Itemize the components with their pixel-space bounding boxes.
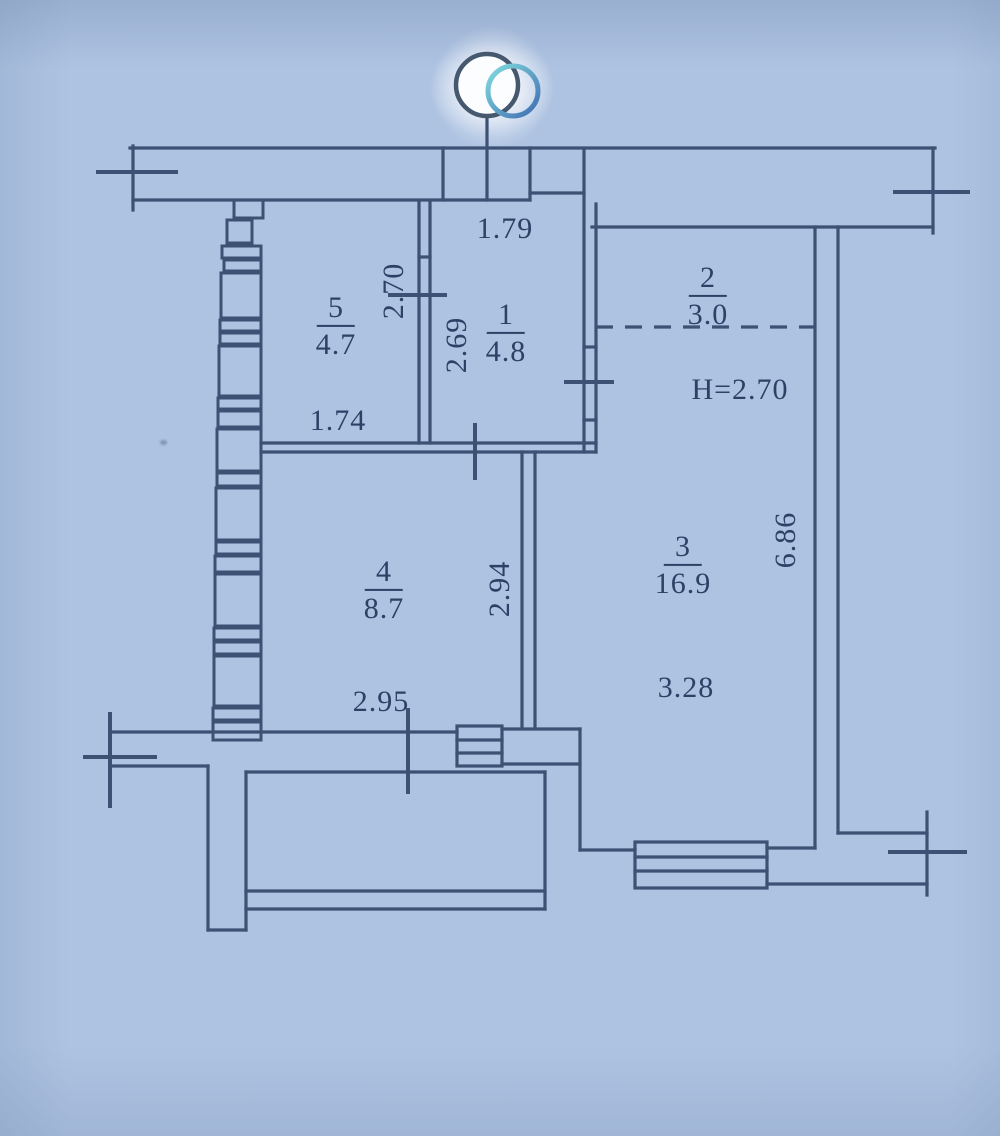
room-2-label: 2 3.0 bbox=[688, 261, 729, 331]
ceiling-height-label: H=2.70 bbox=[691, 373, 788, 407]
ink-smudge bbox=[160, 440, 167, 445]
window-wall-left bbox=[213, 200, 263, 740]
dim-2-95-label: 2.95 bbox=[353, 685, 410, 719]
floor-plan-scan: 1 4.8 2 3.0 3 16.9 4 8.7 5 4.7 1.79 2.70… bbox=[0, 0, 1000, 1136]
room-3-area: 16.9 bbox=[655, 566, 712, 601]
room-2-area: 3.0 bbox=[688, 297, 729, 332]
dim-2-94-label: 2.94 bbox=[483, 561, 517, 618]
dim-2-70-label: 2.70 bbox=[377, 263, 411, 320]
room-1-area: 4.8 bbox=[486, 334, 527, 369]
room-1-label: 1 4.8 bbox=[486, 298, 527, 368]
room-3-number: 3 bbox=[664, 530, 702, 566]
room-2-number: 2 bbox=[689, 261, 727, 297]
dim-2-69-label: 2.69 bbox=[440, 317, 474, 374]
room-5-number: 5 bbox=[317, 291, 355, 327]
room-4-area: 8.7 bbox=[364, 591, 405, 626]
room-5-area: 4.7 bbox=[316, 327, 357, 362]
room-1-number: 1 bbox=[487, 298, 525, 334]
dim-6-86-label: 6.86 bbox=[769, 512, 803, 569]
dim-1-74-label: 1.74 bbox=[310, 404, 367, 438]
room-5-label: 5 4.7 bbox=[316, 291, 357, 361]
room-3-label: 3 16.9 bbox=[655, 530, 712, 600]
dim-3-28-label: 3.28 bbox=[658, 671, 715, 705]
room-4-label: 4 8.7 bbox=[364, 555, 405, 625]
room-4-number: 4 bbox=[365, 555, 403, 591]
dim-1-79-label: 1.79 bbox=[477, 212, 534, 246]
